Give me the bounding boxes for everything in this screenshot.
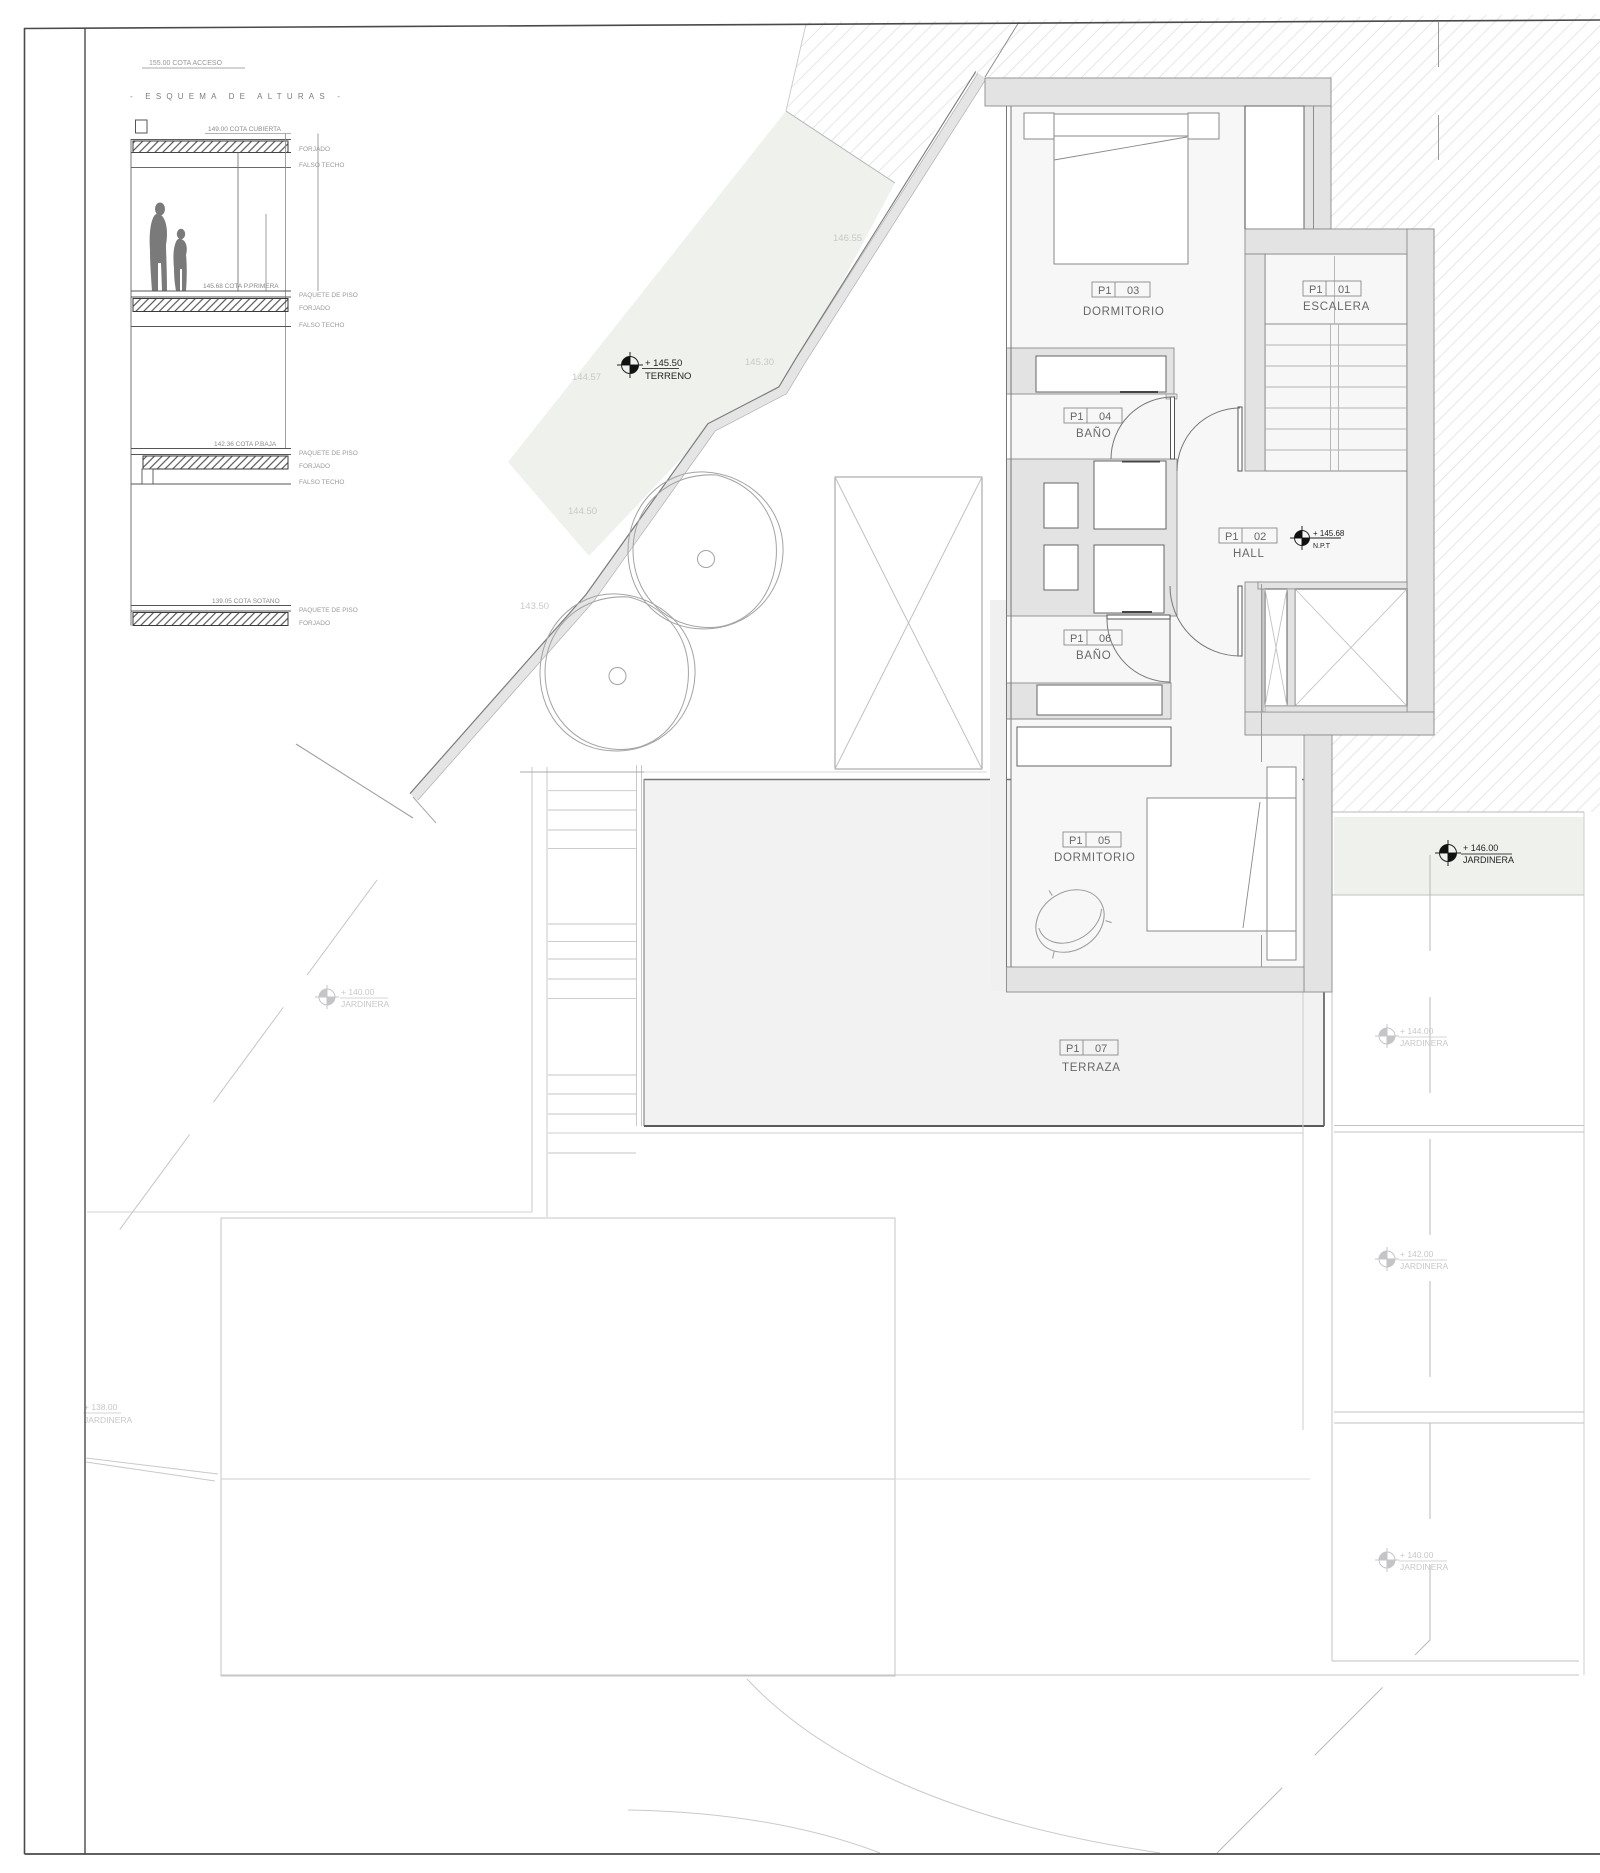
svg-text:FALSO TECHO: FALSO TECHO	[299, 322, 344, 329]
svg-text:P1: P1	[1069, 835, 1082, 847]
svg-text:N.P.T: N.P.T	[1313, 543, 1331, 550]
svg-text:07: 07	[1095, 1043, 1107, 1055]
svg-text:FORJADO: FORJADO	[299, 305, 330, 312]
svg-text:+ 145.68: + 145.68	[1313, 529, 1345, 538]
svg-text:DORMITORIO: DORMITORIO	[1083, 306, 1165, 318]
svg-text:02: 02	[1254, 531, 1266, 543]
svg-text:144.50: 144.50	[568, 506, 597, 517]
svg-text:+ 142.00: + 142.00	[1400, 1249, 1434, 1259]
svg-text:JARDINERA: JARDINERA	[1400, 1038, 1449, 1048]
svg-text:PAQUETE DE PISO: PAQUETE DE PISO	[299, 450, 358, 457]
svg-text:P1: P1	[1070, 411, 1083, 423]
svg-text:HALL: HALL	[1233, 548, 1265, 560]
svg-text:P1: P1	[1070, 633, 1083, 645]
svg-text:149.00 COTA CUBIERTA: 149.00 COTA CUBIERTA	[208, 126, 282, 133]
svg-text:BAÑO: BAÑO	[1076, 427, 1111, 440]
svg-text:155.00 COTA ACCESO: 155.00 COTA ACCESO	[149, 60, 223, 67]
svg-text:P1: P1	[1098, 285, 1111, 297]
svg-text:JARDINERA: JARDINERA	[84, 1415, 133, 1425]
svg-text:BAÑO: BAÑO	[1076, 649, 1111, 662]
svg-text:JARDINERA: JARDINERA	[341, 999, 390, 1009]
svg-text:145.68 COTA P.PRIMERA: 145.68 COTA P.PRIMERA	[203, 283, 279, 290]
svg-text:JARDINERA: JARDINERA	[1400, 1562, 1449, 1572]
svg-text:P1: P1	[1309, 284, 1322, 296]
svg-text:TERRENO: TERRENO	[645, 371, 691, 382]
svg-text:P1: P1	[1066, 1043, 1079, 1055]
svg-text:JARDINERA: JARDINERA	[1400, 1261, 1449, 1271]
svg-text:06: 06	[1099, 633, 1111, 645]
svg-text:+ 145.50: + 145.50	[645, 358, 682, 369]
svg-text:03: 03	[1127, 285, 1139, 297]
svg-text:05: 05	[1098, 835, 1110, 847]
svg-text:01: 01	[1338, 284, 1350, 296]
svg-text:04: 04	[1099, 411, 1111, 423]
svg-text:+ 138.00: + 138.00	[84, 1402, 118, 1412]
svg-text:144.57: 144.57	[572, 372, 601, 383]
svg-text:+ 146.00: + 146.00	[1463, 843, 1498, 853]
svg-text:FORJADO: FORJADO	[299, 146, 330, 153]
svg-text:143.50: 143.50	[520, 601, 549, 612]
svg-text:FORJADO: FORJADO	[299, 620, 330, 627]
svg-text:FALSO TECHO: FALSO TECHO	[299, 479, 344, 486]
svg-text:ESCALERA: ESCALERA	[1303, 301, 1370, 313]
svg-text:145.30: 145.30	[745, 357, 774, 368]
svg-text:+ 144.00: + 144.00	[1400, 1026, 1434, 1036]
svg-text:142.36 COTA P.BAJA: 142.36 COTA P.BAJA	[214, 441, 277, 448]
svg-text:139.05 COTA SOTANO: 139.05 COTA SOTANO	[212, 598, 280, 605]
svg-text:- ESQUEMA DE ALTURAS -: - ESQUEMA DE ALTURAS -	[130, 92, 345, 101]
svg-text:P1: P1	[1225, 531, 1238, 543]
svg-text:+ 140.00: + 140.00	[341, 987, 375, 997]
svg-text:PAQUETE DE PISO: PAQUETE DE PISO	[299, 292, 358, 299]
svg-text:+ 140.00: + 140.00	[1400, 1550, 1434, 1560]
svg-text:FALSO TECHO: FALSO TECHO	[299, 162, 344, 169]
svg-text:FORJADO: FORJADO	[299, 463, 330, 470]
svg-text:146.55: 146.55	[833, 233, 862, 244]
svg-text:PAQUETE DE PISO: PAQUETE DE PISO	[299, 607, 358, 614]
svg-text:DORMITORIO: DORMITORIO	[1054, 852, 1136, 864]
svg-text:TERRAZA: TERRAZA	[1062, 1062, 1121, 1074]
svg-text:JARDINERA: JARDINERA	[1463, 855, 1514, 865]
